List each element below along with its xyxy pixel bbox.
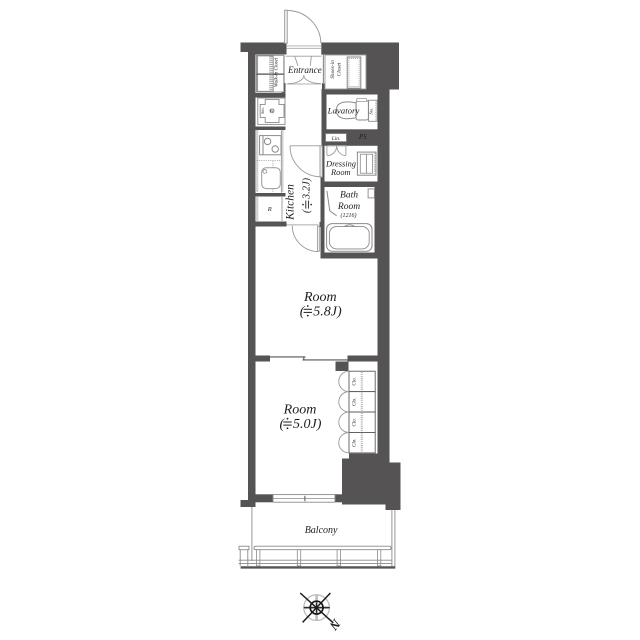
svg-text:Kitchen: Kitchen: [285, 184, 297, 221]
svg-text:Closet: Closet: [337, 62, 343, 76]
svg-text:Shoes-in: Shoes-in: [330, 60, 336, 79]
svg-text:Entrance: Entrance: [287, 65, 322, 75]
svg-text:Sto.: Sto.: [368, 107, 373, 114]
svg-text:Clo.: Clo.: [352, 398, 357, 406]
svg-text:3.2J): 3.2J): [302, 177, 313, 200]
svg-text:Clo.: Clo.: [352, 438, 357, 446]
svg-text:Lin.: Lin.: [331, 136, 341, 142]
svg-text:Lavatory: Lavatory: [327, 105, 360, 115]
svg-text:PS: PS: [358, 134, 367, 141]
svg-text:Bath: Bath: [340, 191, 358, 201]
svg-text:W: W: [270, 109, 274, 114]
svg-text:5.0J): 5.0J): [293, 417, 322, 432]
svg-text:Clo.: Clo.: [352, 377, 357, 385]
svg-text:Balcony: Balcony: [305, 525, 338, 536]
svg-text:Clo.: Clo.: [352, 418, 357, 426]
svg-text:Walk-in Closet: Walk-in Closet: [275, 57, 280, 87]
svg-text:(1216): (1216): [341, 212, 357, 219]
svg-text:5.8J): 5.8J): [313, 304, 342, 319]
svg-text:Sto.: Sto.: [260, 107, 265, 114]
svg-text:Room: Room: [330, 168, 351, 177]
svg-text:R: R: [267, 206, 272, 213]
svg-text:Room: Room: [283, 402, 317, 417]
svg-text:Room: Room: [303, 290, 337, 305]
svg-text:Room: Room: [337, 202, 360, 212]
